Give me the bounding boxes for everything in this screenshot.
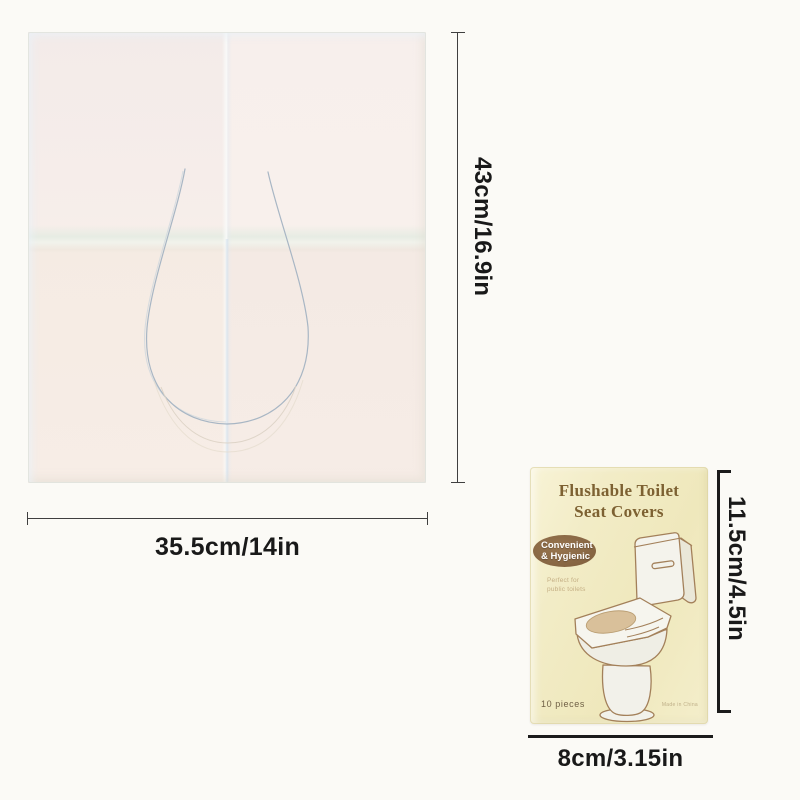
package-height-dimension-line — [717, 470, 720, 713]
sheet-height-dimension-line — [457, 32, 458, 483]
package-height-label: 11.5cm/4.5in — [722, 496, 750, 641]
package-front: Flushable Toilet Seat Covers Convenient … — [530, 467, 708, 724]
origin-label: Made in China — [662, 702, 698, 708]
product-image: 43cm/16.9in 35.5cm/14in Flushable Toilet… — [0, 0, 800, 800]
toilet-illustration — [530, 467, 708, 724]
sheet-width-dimension-line — [27, 518, 428, 519]
sheet-height-label: 43cm/16.9in — [468, 157, 496, 296]
sheet-width-label: 35.5cm/14in — [27, 533, 428, 562]
sheet-edge-highlight — [28, 32, 426, 483]
pieces-count-label: 10 pieces — [541, 699, 585, 709]
seat-cover-sheet — [28, 32, 426, 483]
package-width-label: 8cm/3.15in — [528, 745, 713, 773]
package-width-dimension-line — [528, 735, 713, 738]
